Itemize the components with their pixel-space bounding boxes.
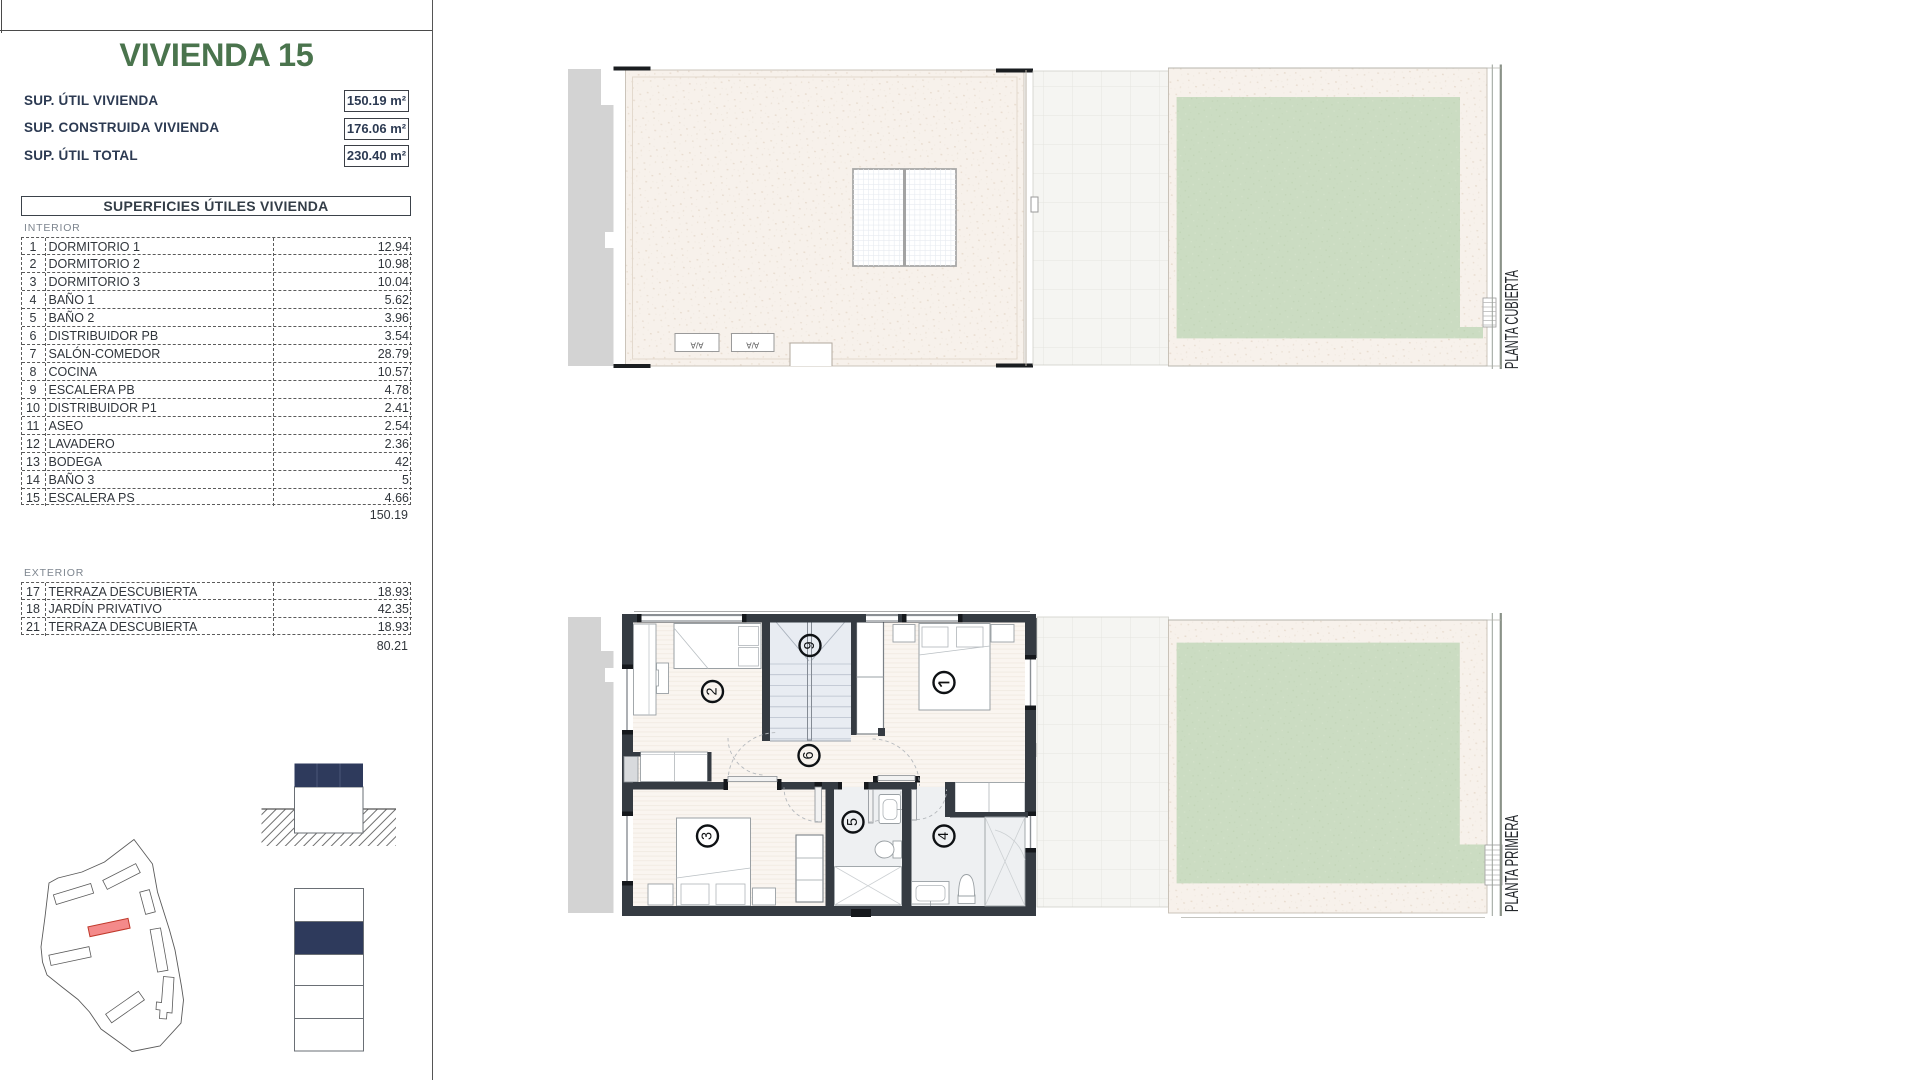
svg-text:A/A: A/A [690, 341, 704, 350]
svg-text:6: 6 [801, 751, 817, 759]
svg-text:5: 5 [845, 818, 861, 826]
svg-text:2: 2 [705, 687, 721, 695]
svg-text:PLANTA CUBIERTA: PLANTA CUBIERTA [1502, 270, 1522, 369]
svg-text:PLANTA PRIMERA: PLANTA PRIMERA [1502, 815, 1522, 912]
svg-text:4: 4 [936, 832, 952, 840]
svg-text:A/A: A/A [746, 341, 760, 350]
svg-text:3: 3 [700, 832, 716, 840]
svg-text:9: 9 [802, 641, 818, 649]
